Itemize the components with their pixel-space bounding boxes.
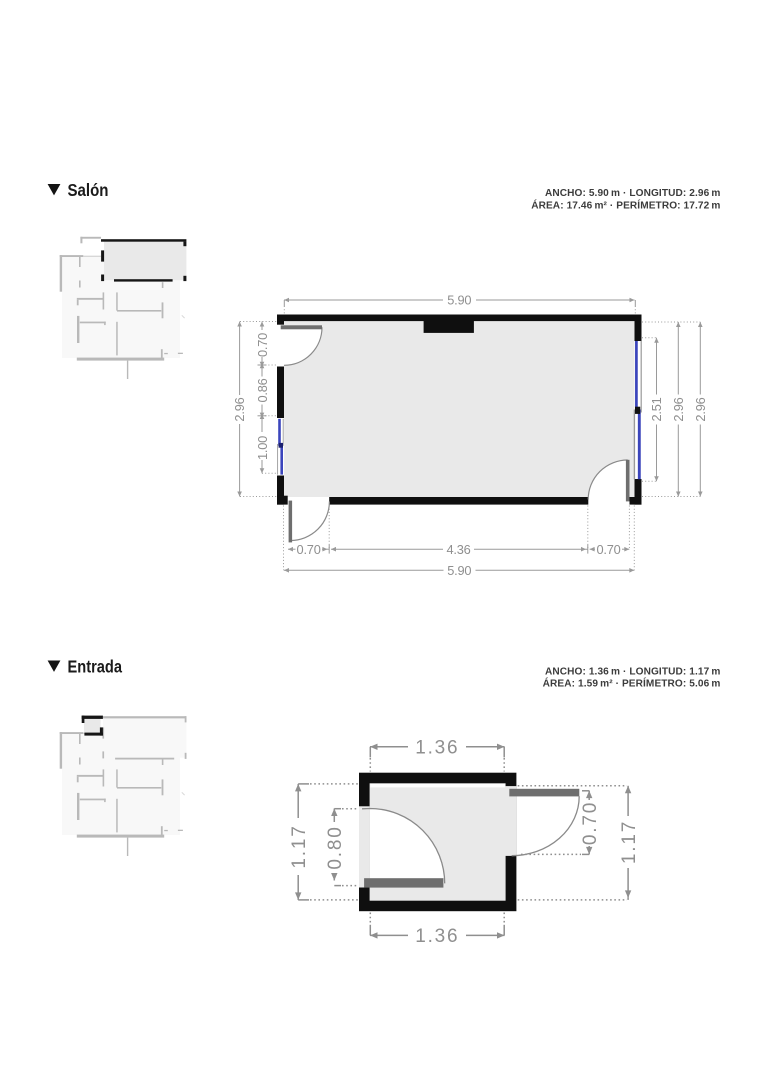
svg-text:2.96: 2.96 bbox=[693, 397, 708, 421]
svg-text:1.36: 1.36 bbox=[415, 926, 459, 947]
svg-text:ANCHO: 1.36 m · LONGITUD: 1.17: ANCHO: 1.36 m · LONGITUD: 1.17 m bbox=[545, 666, 721, 677]
svg-text:5.90: 5.90 bbox=[447, 293, 471, 308]
svg-text:0.70: 0.70 bbox=[580, 801, 601, 845]
svg-text:ANCHO: 5.90 m · LONGITUD: 2.96: ANCHO: 5.90 m · LONGITUD: 2.96 m bbox=[545, 188, 721, 199]
svg-text:0.70: 0.70 bbox=[596, 542, 620, 557]
svg-text:Entrada: Entrada bbox=[68, 657, 123, 677]
svg-text:1.17: 1.17 bbox=[289, 824, 310, 868]
svg-text:ÁREA: 1.59 m² · PERÍMETRO: 5.0: ÁREA: 1.59 m² · PERÍMETRO: 5.06 m bbox=[543, 676, 721, 689]
svg-text:2.96: 2.96 bbox=[232, 397, 247, 421]
svg-text:1.00: 1.00 bbox=[255, 436, 270, 460]
svg-text:0.70: 0.70 bbox=[255, 333, 270, 357]
svg-text:1.17: 1.17 bbox=[619, 820, 640, 864]
svg-text:4.36: 4.36 bbox=[446, 542, 470, 557]
svg-text:1.36: 1.36 bbox=[415, 738, 459, 759]
svg-text:ÁREA: 17.46 m² · PERÍMETRO: 17: ÁREA: 17.46 m² · PERÍMETRO: 17.72 m bbox=[531, 198, 720, 211]
svg-text:0.80: 0.80 bbox=[325, 825, 346, 869]
svg-text:5.90: 5.90 bbox=[447, 563, 471, 578]
svg-text:2.96: 2.96 bbox=[671, 397, 686, 421]
svg-text:0.70: 0.70 bbox=[297, 542, 321, 557]
svg-text:Salón: Salón bbox=[68, 180, 109, 200]
svg-text:2.51: 2.51 bbox=[649, 397, 664, 421]
svg-text:0.86: 0.86 bbox=[255, 378, 270, 402]
